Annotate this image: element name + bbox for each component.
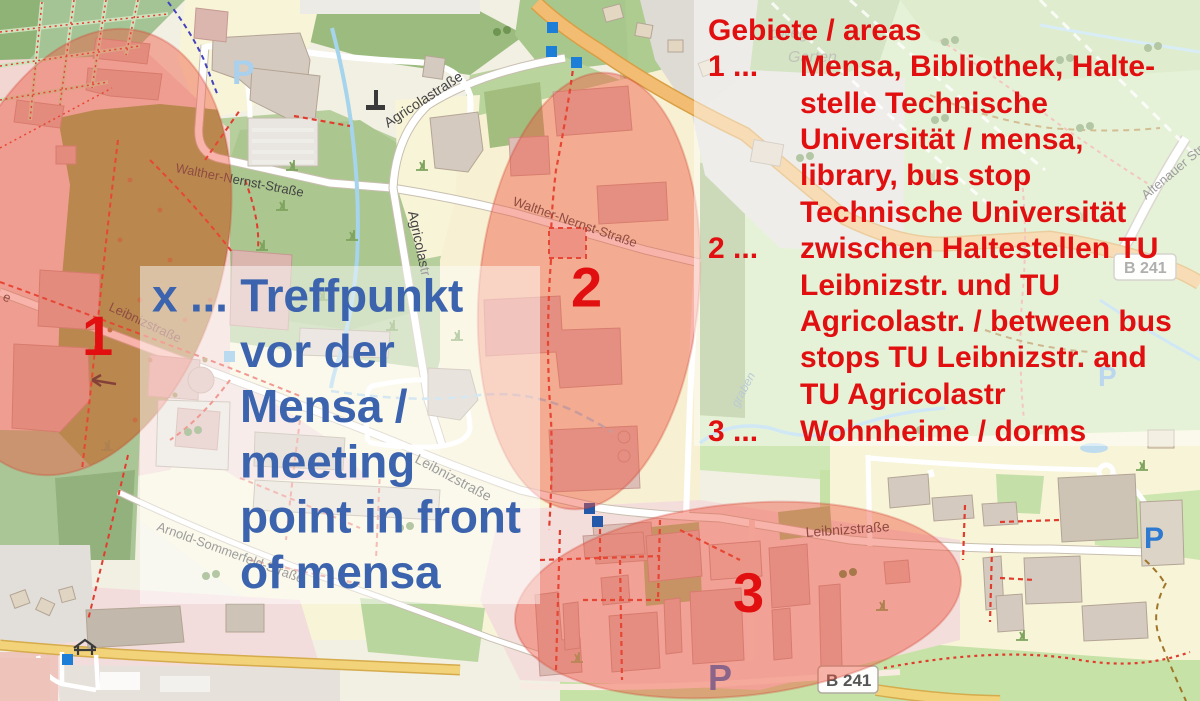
svg-text:stelle Technische: stelle Technische — [800, 87, 1048, 120]
svg-text:3 ...: 3 ... — [708, 415, 758, 448]
svg-text:Gebiete / areas: Gebiete / areas — [708, 14, 921, 47]
svg-text:Agricolastr. / between bus: Agricolastr. / between bus — [800, 305, 1172, 338]
svg-text:1 ...: 1 ... — [708, 50, 758, 83]
svg-text:x ... Treffpunkt: x ... Treffpunkt — [152, 270, 463, 322]
svg-text:Universität / mensa,: Universität / mensa, — [800, 123, 1083, 156]
svg-text:Wohnheime / dorms: Wohnheime / dorms — [800, 415, 1086, 448]
svg-text:point in front: point in front — [240, 491, 521, 543]
svg-text:Leibnizstr. und TU: Leibnizstr. und TU — [800, 269, 1060, 302]
svg-text:2 ...: 2 ... — [708, 232, 758, 265]
svg-text:1: 1 — [82, 304, 113, 367]
svg-text:P: P — [232, 54, 255, 92]
svg-text:P: P — [1144, 522, 1164, 555]
svg-text:of mensa: of mensa — [240, 546, 441, 598]
svg-text:3: 3 — [733, 561, 764, 624]
svg-text:meeting: meeting — [240, 435, 415, 487]
svg-text:2: 2 — [571, 256, 602, 319]
svg-text:Technische Universität: Technische Universität — [800, 196, 1126, 229]
svg-text:library, bus stop: library, bus stop — [800, 159, 1031, 192]
svg-text:zwischen Haltestellen TU: zwischen Haltestellen TU — [800, 232, 1158, 265]
svg-text:vor der: vor der — [240, 325, 395, 377]
svg-text:Mensa /: Mensa / — [240, 380, 408, 432]
svg-text:Mensa, Bibliothek, Halte-: Mensa, Bibliothek, Halte- — [800, 50, 1155, 83]
svg-text:stops TU Leibnizstr. and: stops TU Leibnizstr. and — [800, 341, 1147, 374]
svg-text:TU Agricolastr: TU Agricolastr — [800, 378, 1006, 411]
